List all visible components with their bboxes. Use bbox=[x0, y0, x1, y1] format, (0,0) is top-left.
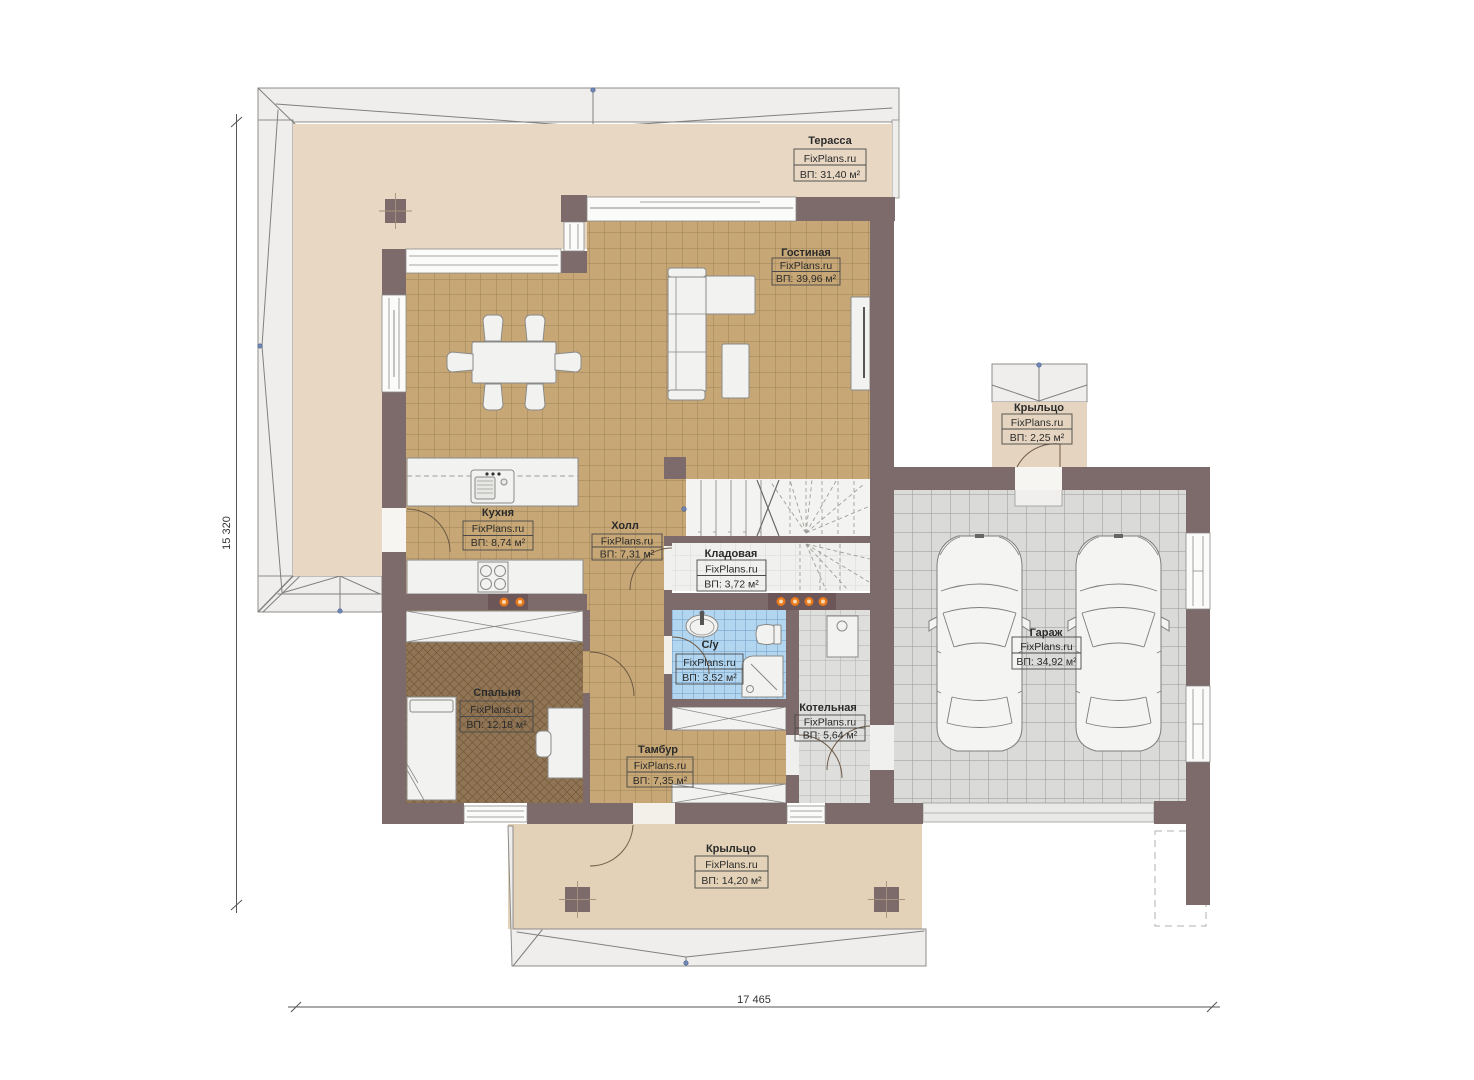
svg-text:Терасса: Терасса bbox=[808, 135, 852, 147]
svg-text:Гостиная: Гостиная bbox=[781, 247, 831, 259]
svg-text:FixPlans.ru: FixPlans.ru bbox=[705, 564, 758, 576]
svg-text:FixPlans.ru: FixPlans.ru bbox=[634, 760, 687, 772]
svg-text:Котельная: Котельная bbox=[799, 702, 857, 714]
svg-text:ВП: 7,31 м²: ВП: 7,31 м² bbox=[600, 549, 655, 561]
svg-text:ВП: 7,35 м²: ВП: 7,35 м² bbox=[633, 775, 688, 787]
svg-text:17 465: 17 465 bbox=[737, 994, 771, 1006]
svg-text:ВП: 3,72 м²: ВП: 3,72 м² bbox=[704, 579, 759, 591]
svg-text:FixPlans.ru: FixPlans.ru bbox=[470, 704, 523, 716]
svg-text:ВП: 8,74 м²: ВП: 8,74 м² bbox=[471, 537, 526, 549]
svg-text:ВП: 3,52 м²: ВП: 3,52 м² bbox=[682, 672, 737, 684]
svg-text:FixPlans.ru: FixPlans.ru bbox=[804, 717, 857, 729]
svg-text:FixPlans.ru: FixPlans.ru bbox=[1020, 641, 1073, 653]
svg-text:Кухня: Кухня bbox=[482, 507, 514, 519]
svg-text:Холл: Холл bbox=[611, 520, 639, 532]
svg-text:Крыльцо: Крыльцо bbox=[1014, 402, 1064, 414]
svg-text:FixPlans.ru: FixPlans.ru bbox=[601, 536, 654, 548]
svg-text:Крыльцо: Крыльцо bbox=[706, 843, 756, 855]
svg-text:ВП: 2,25 м²: ВП: 2,25 м² bbox=[1010, 432, 1065, 444]
svg-text:ВП: 5,64 м²: ВП: 5,64 м² bbox=[803, 730, 858, 742]
svg-text:ВП: 31,40 м²: ВП: 31,40 м² bbox=[800, 169, 861, 181]
svg-text:ВП: 34,92 м²: ВП: 34,92 м² bbox=[1016, 656, 1077, 668]
svg-text:С/у: С/у bbox=[701, 639, 719, 651]
svg-text:FixPlans.ru: FixPlans.ru bbox=[472, 523, 525, 535]
svg-text:Кладовая: Кладовая bbox=[705, 548, 758, 560]
svg-text:FixPlans.ru: FixPlans.ru bbox=[1011, 417, 1064, 429]
svg-text:ВП: 14,20 м²: ВП: 14,20 м² bbox=[701, 875, 762, 887]
svg-text:15 320: 15 320 bbox=[221, 516, 233, 550]
svg-text:ВП: 39,96 м²: ВП: 39,96 м² bbox=[776, 273, 837, 285]
svg-text:FixPlans.ru: FixPlans.ru bbox=[705, 859, 758, 871]
svg-text:ВП: 12,18 м²: ВП: 12,18 м² bbox=[466, 719, 527, 731]
svg-text:FixPlans.ru: FixPlans.ru bbox=[780, 260, 833, 272]
svg-text:FixPlans.ru: FixPlans.ru bbox=[804, 153, 857, 165]
svg-text:FixPlans.ru: FixPlans.ru bbox=[683, 657, 736, 669]
svg-text:Тамбур: Тамбур bbox=[638, 744, 678, 756]
svg-text:Спальня: Спальня bbox=[473, 687, 521, 699]
